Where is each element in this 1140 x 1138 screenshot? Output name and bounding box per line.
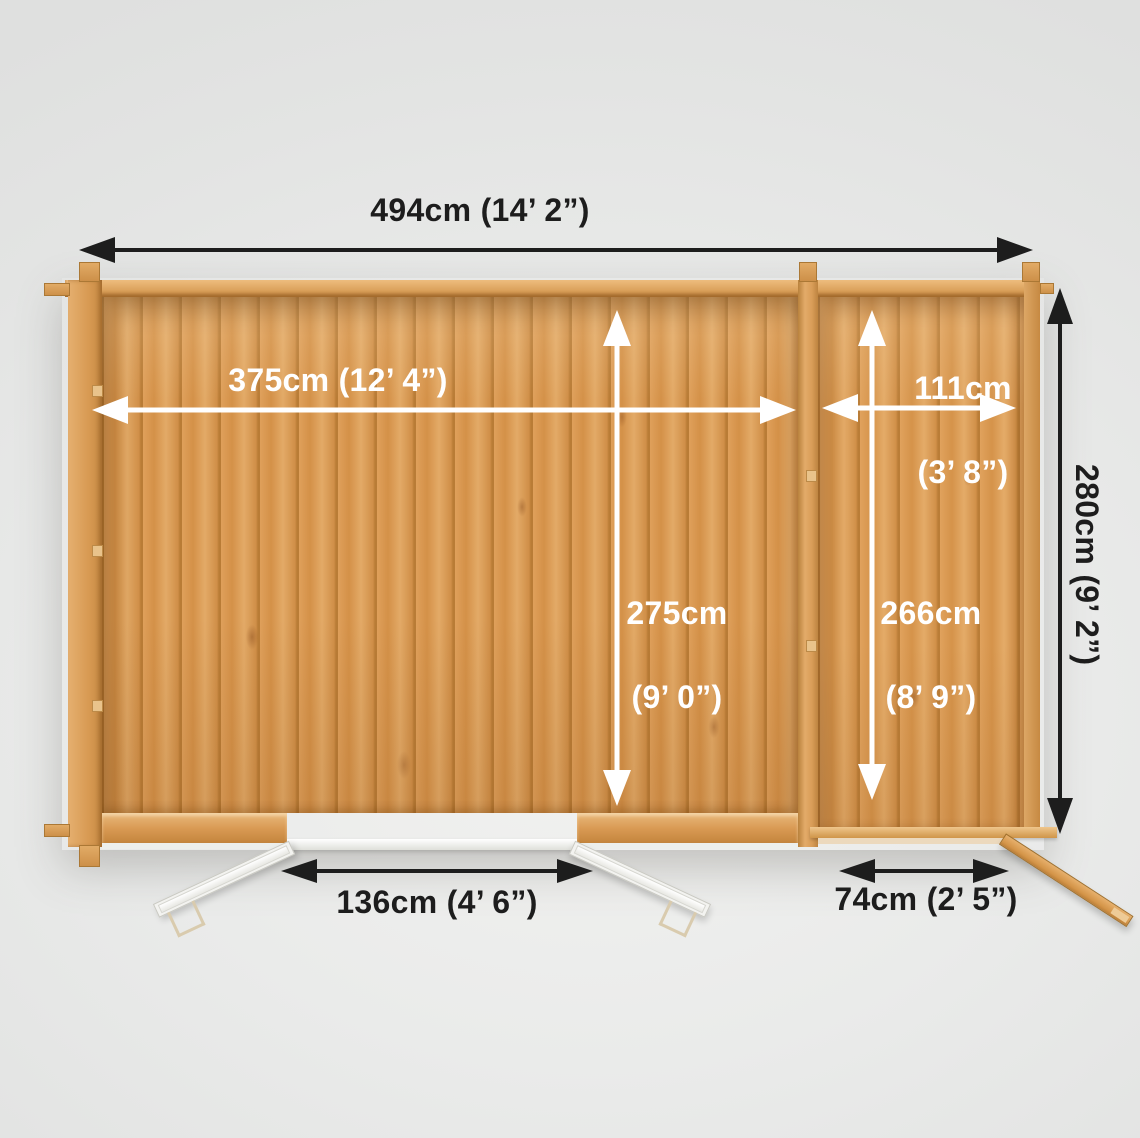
dim-overall-width-arrow [79,237,1033,263]
dim-side-width-label: 111cm (3’ 8”) [863,325,1063,535]
dim-main-depth-label: 275cm (9’ 0”) [577,550,777,760]
dim-overall-depth-label: 280cm (9’ 2”) [1065,415,1109,715]
dim-main-door-arrow [281,859,593,883]
dim-side-door-label: 74cm (2’ 5”) [676,878,1140,920]
dim-overall-width-label: 494cm (14’ 2”) [230,189,730,231]
dim-main-door-label: 136cm (4’ 6”) [187,881,687,923]
dim-main-width-label: 375cm (12’ 4”) [88,359,588,401]
dim-main-depth-imperial: (9’ 0”) [577,676,777,718]
dim-main-depth-cm: 275cm [577,592,777,634]
cabin-dimension-diagram: 494cm (14’ 2”) 375cm (12’ 4”) 275cm (9’ … [0,0,1140,1138]
dim-side-depth-cm: 266cm [831,592,1031,634]
dim-side-depth-label: 266cm (8’ 9”) [831,550,1031,760]
dim-side-width-cm: 111cm [863,367,1063,409]
dim-side-depth-imperial: (8’ 9”) [831,676,1031,718]
dim-side-width-imperial: (3’ 8”) [863,451,1063,493]
